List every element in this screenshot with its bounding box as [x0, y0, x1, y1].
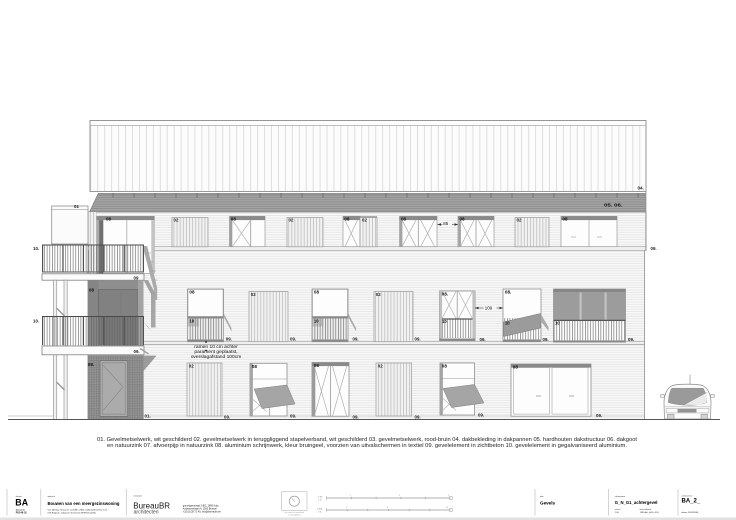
svg-text:109: 109 [485, 305, 493, 310]
svg-text:opdracht: opdracht [48, 495, 56, 498]
svg-text:plannummer: plannummer [615, 495, 626, 498]
svg-text:1: 1 [350, 495, 351, 497]
svg-text:10: 10 [314, 319, 319, 324]
svg-text:08: 08 [189, 290, 195, 295]
svg-text:08: 08 [344, 217, 350, 222]
svg-text:08: 08 [314, 363, 320, 368]
svg-text:02: 02 [174, 218, 179, 223]
svg-text:05. 06.: 05. 06. [604, 202, 623, 208]
svg-text:5: 5 [448, 495, 449, 497]
svg-text:schaal: schaal [615, 509, 621, 511]
svg-text:09.: 09. [290, 414, 296, 419]
svg-text:09.: 09. [596, 413, 602, 418]
svg-text:09.: 09. [543, 337, 549, 342]
svg-text:10: 10 [442, 319, 447, 324]
svg-text:08: 08 [442, 363, 448, 368]
svg-text:09.: 09. [415, 336, 421, 341]
svg-text:1 m: 1 m [318, 500, 322, 502]
svg-text:070 Belgium, volgnone Gemeente: 070 Belgium, volgnone Gemeente 8PM Straa… [48, 511, 98, 514]
svg-text:overslagafstand 100cm: overslagafstand 100cm [191, 354, 242, 360]
svg-text:10: 10 [555, 320, 560, 325]
svg-text:09.: 09. [478, 413, 484, 418]
svg-text:02: 02 [376, 292, 381, 297]
svg-text:2: 2 [346, 507, 347, 509]
svg-text:02: 02 [378, 363, 383, 368]
svg-text:09.: 09. [290, 336, 296, 341]
svg-text:08: 08 [563, 217, 569, 222]
svg-text:Van Mierlop, Straat dr. xxl 23: Van Mierlop, Straat dr. xxl 2380 -2382, … [48, 509, 108, 512]
svg-text:werknummer: werknummer [682, 495, 693, 498]
svg-text:09.: 09. [224, 415, 230, 420]
svg-text:bestandnaam: bestandnaam [640, 508, 652, 511]
svg-text:85: 85 [443, 221, 448, 226]
svg-text:Gevels: Gevels [540, 500, 556, 505]
svg-text:08.: 08. [442, 292, 448, 297]
svg-text:ontwerper: ontwerper [134, 495, 143, 498]
svg-text:10: 10 [189, 319, 194, 324]
svg-text:08: 08 [460, 217, 466, 222]
svg-text:+32 (0) 28 71 40, info@bureaub: +32 (0) 28 71 40, info@bureaubr.be [183, 511, 222, 514]
svg-text:02: 02 [189, 363, 194, 368]
svg-text:01.: 01. [145, 414, 151, 419]
svg-text:Bouwen van een meergezinswonin: Bouwen van een meergezinswoning [48, 501, 121, 506]
svg-text:08: 08 [106, 217, 112, 222]
svg-text:09: 09 [134, 276, 139, 281]
svg-text:datum 15/05/2004: datum 15/05/2004 [682, 511, 700, 514]
svg-text:in werkelijkheid: in werkelijkheid [288, 514, 300, 516]
svg-text:09.: 09. [651, 246, 657, 251]
svg-text:08: 08 [401, 217, 407, 222]
svg-text:08: 08 [513, 365, 519, 370]
svg-text:08: 08 [89, 288, 94, 293]
svg-text:6: 6 [387, 507, 388, 509]
svg-text:G_N_G1_achtergevel: G_N_G1_achtergevel [615, 500, 658, 505]
svg-text:3: 3 [399, 495, 400, 497]
svg-text:10: 10 [446, 507, 448, 509]
svg-text:P02-46-18: P02-46-18 [16, 512, 27, 515]
svg-text:02: 02 [517, 218, 522, 223]
svg-text:02: 02 [289, 218, 294, 223]
svg-text:10: 10 [505, 321, 510, 326]
svg-text:02: 02 [362, 218, 367, 223]
svg-text:09.: 09. [628, 337, 634, 342]
svg-text:10.: 10. [33, 246, 39, 251]
svg-text:09.: 09. [353, 336, 359, 341]
svg-text:09.: 09. [134, 349, 140, 354]
svg-text:02: 02 [251, 292, 256, 297]
svg-text:04.: 04. [638, 185, 644, 190]
svg-text:architecten: architecten [134, 510, 159, 516]
svg-text:09.: 09. [415, 415, 421, 420]
svg-text:dossiernr: dossiernr [16, 510, 25, 512]
svg-text:08.: 08. [88, 362, 94, 367]
svg-text:en natuurzink 07. afvoerpijp: en natuurzink 07. afvoerpijp in natuurzi… [107, 443, 627, 449]
svg-text:09.: 09. [480, 337, 486, 342]
svg-text:10.: 10. [33, 319, 39, 324]
svg-text:01: 01 [74, 204, 79, 209]
svg-text:08: 08 [252, 364, 258, 369]
svg-text:09.: 09. [353, 415, 359, 420]
svg-text:08.: 08. [505, 290, 511, 295]
svg-text:1585-A0_-605 x 594: 1585-A0_-605 x 594 [640, 511, 660, 514]
svg-text:BA_2_: BA_2_ [682, 499, 701, 505]
svg-text:08: 08 [231, 217, 237, 222]
svg-text:2 m: 2 m [318, 512, 322, 514]
svg-text:09.: 09. [226, 336, 232, 341]
svg-text:08: 08 [314, 290, 320, 295]
svg-text:1:100: 1:100 [317, 509, 323, 511]
svg-text:BA: BA [15, 498, 28, 508]
svg-text:plan: plan [540, 496, 544, 498]
